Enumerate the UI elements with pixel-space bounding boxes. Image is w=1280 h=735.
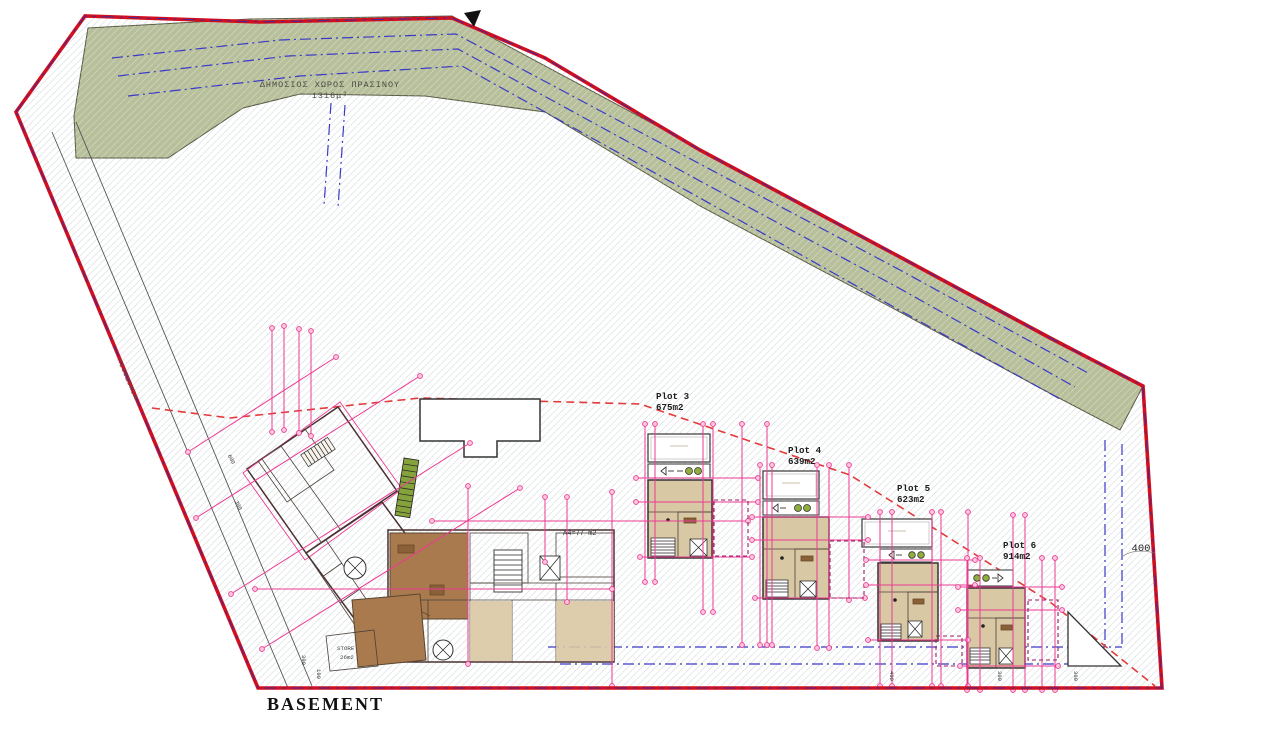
plot-3-area: 675m2	[656, 402, 684, 413]
plot-6-name: Plot 6	[1003, 540, 1036, 551]
dim-tick: 100	[315, 669, 322, 679]
store-area-label: 26m2	[340, 654, 354, 661]
site-plan-canvas: ΔΗΜΟΣΙΟΣ ΧΩΡΟΣ ΠΡΑΣΙΝΟΥ 1316μ² Plot 3 67…	[0, 0, 1280, 735]
site-plan-page: ΔΗΜΟΣΙΟΣ ΧΩΡΟΣ ΠΡΑΣΙΝΟΥ 1316μ² Plot 3 67…	[0, 0, 1280, 735]
plot-5-area: 623m2	[897, 494, 925, 505]
green-space-area: 1316μ²	[312, 91, 349, 101]
plot-3-building	[648, 434, 712, 558]
setback-dim-400: 400	[1132, 543, 1151, 555]
stair-core	[494, 550, 522, 592]
dim-tick: 300	[996, 671, 1003, 681]
plot-5-name: Plot 5	[897, 483, 931, 494]
unit-a4-label: A4=77 m2	[563, 530, 597, 538]
basement-title: BASEMENT	[267, 694, 384, 714]
plot-4-area: 639m2	[788, 456, 816, 467]
green-space-label: ΔΗΜΟΣΙΟΣ ΧΩΡΟΣ ΠΡΑΣΙΝΟΥ	[260, 80, 400, 90]
plot-4-building	[763, 471, 829, 599]
dim-tick: 300	[300, 655, 307, 665]
stairs	[766, 580, 788, 597]
elevator-shaft	[540, 556, 560, 580]
plot-6-area: 914m2	[1003, 551, 1031, 562]
plot-4-name: Plot 4	[788, 445, 822, 456]
stairs	[881, 624, 901, 639]
dim-tick: 300	[1072, 671, 1079, 681]
dim-tick: 400	[888, 671, 895, 681]
store-label: STORE	[337, 645, 355, 652]
car-icon	[974, 574, 1003, 582]
plot-3-name: Plot 3	[656, 391, 690, 402]
